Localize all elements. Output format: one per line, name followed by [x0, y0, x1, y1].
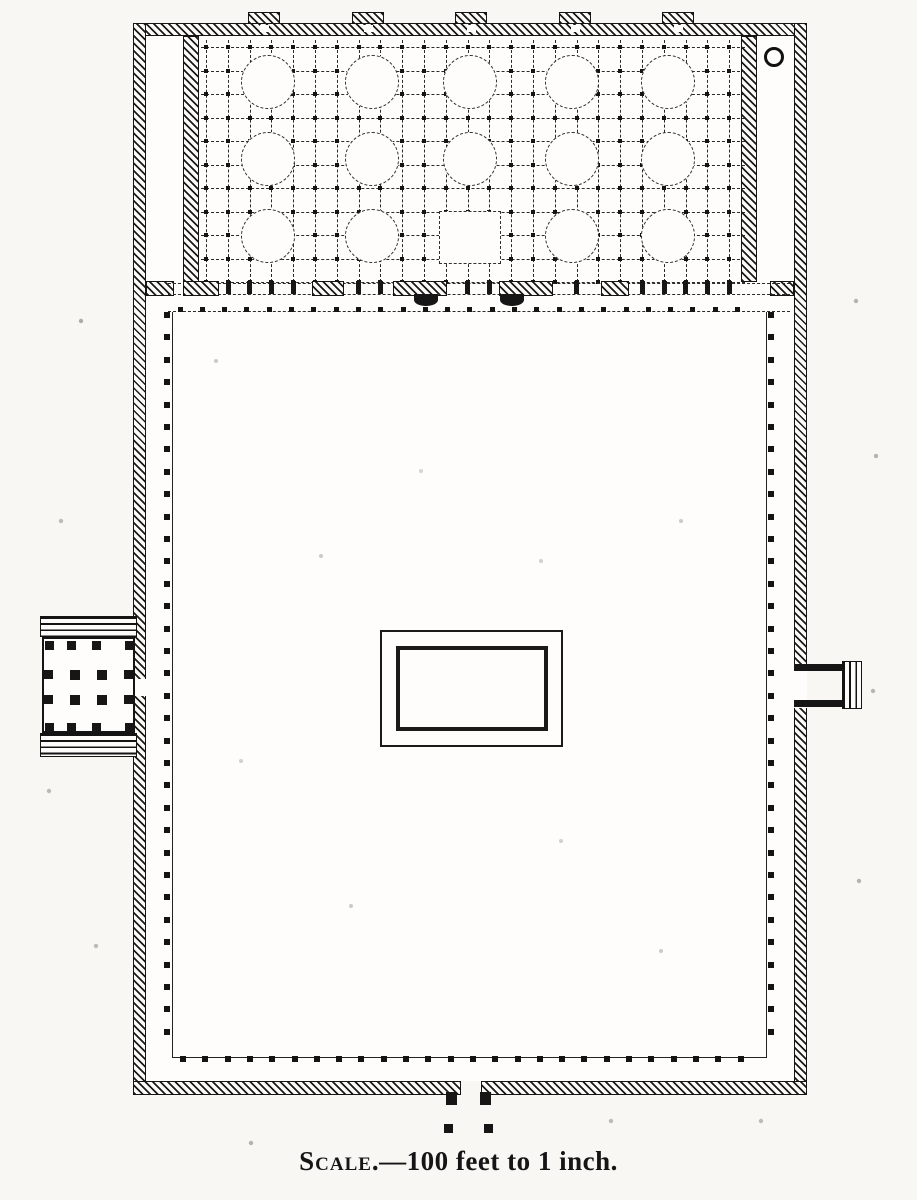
arcade-column-dot-west [164, 827, 170, 833]
arcade-column-dot-west [164, 917, 170, 923]
east-wall [794, 23, 807, 1095]
hall-column-dot [226, 139, 230, 143]
dome-circle [641, 55, 695, 109]
north-wall-buttress [559, 12, 591, 24]
buttress-niche [364, 25, 373, 32]
hall-column-dot [204, 69, 208, 73]
boundary-dash-line [168, 283, 790, 284]
paper-speckles [0, 0, 2, 2]
arcade-column-dot-east [768, 715, 774, 721]
arcade-column-dot-south [247, 1056, 253, 1062]
west-gate-pier [70, 670, 80, 680]
hall-column-dot [335, 116, 339, 120]
boundary-column-tick [705, 281, 710, 294]
hall-column-dot [487, 116, 491, 120]
hall-column-dot [378, 186, 382, 190]
boundary-column-tick [683, 281, 688, 294]
hall-column-dot [596, 139, 600, 143]
arcade-column-dot-west [164, 536, 170, 542]
hall-column-dot [335, 92, 339, 96]
hall-column-dot [553, 186, 557, 190]
arcade-column-dot-east [768, 670, 774, 676]
hall-east-partition [741, 36, 757, 282]
scale-caption-value: .—100 feet to 1 inch. [372, 1146, 618, 1176]
arcade-column-dot-south [336, 1056, 342, 1062]
arcade-column-dot-south [202, 1056, 208, 1062]
south-entrance-wall-cap [446, 1092, 457, 1105]
arcade-column-dot-south [358, 1056, 364, 1062]
west-gate-pier [97, 670, 107, 680]
hall-column-dot [400, 257, 404, 261]
hall-column-dot [313, 186, 317, 190]
arcade-column-dot-south [693, 1056, 699, 1062]
hall-column-dot [204, 186, 208, 190]
arcade-column-dot-east [768, 469, 774, 475]
boundary-column-tick [727, 281, 732, 294]
hall-column-dot [313, 69, 317, 73]
hall-column-dot [662, 186, 666, 190]
west-gate-pilaster [45, 641, 54, 650]
hall-column-dot [509, 233, 513, 237]
hall-column-dot [400, 163, 404, 167]
boundary-dash-line [168, 294, 790, 295]
arcade-column-dot-east [768, 334, 774, 340]
boundary-column-tick [356, 281, 361, 294]
west-gate-pilaster [44, 695, 53, 704]
hall-column-dot [357, 186, 361, 190]
hall-column-dot [248, 116, 252, 120]
dome-circle [241, 132, 295, 186]
hall-column-dot [422, 210, 426, 214]
arcade-column-dot-south [738, 1056, 744, 1062]
hall-column-dot [684, 45, 688, 49]
hall-column-dot [618, 45, 622, 49]
south-entrance-post [484, 1124, 493, 1133]
arcade-column-dot-west [164, 738, 170, 744]
hall-grid-vline [424, 40, 425, 282]
hall-column-dot [291, 210, 295, 214]
hall-column-dot [226, 210, 230, 214]
hall-column-dot [596, 116, 600, 120]
hall-grid-vline [315, 40, 316, 282]
hall-column-dot [684, 210, 688, 214]
hall-column-dot [400, 116, 404, 120]
hall-column-dot [400, 233, 404, 237]
hall-column-dot [727, 257, 731, 261]
arcade-column-dot-east [768, 581, 774, 587]
boundary-column-tick [378, 281, 383, 294]
hall-column-dot [400, 139, 404, 143]
hall-column-dot [226, 92, 230, 96]
hall-column-dot [618, 233, 622, 237]
hall-column-dot [531, 116, 535, 120]
arcade-column-dot-east [768, 1029, 774, 1035]
boundary-column-tick [269, 281, 274, 294]
hall-column-dot [640, 210, 644, 214]
hall-column-dot [509, 92, 513, 96]
hall-column-dot [727, 210, 731, 214]
hall-column-dot [444, 45, 448, 49]
boundary-column-tick [247, 281, 252, 294]
arcade-column-dot-west [164, 334, 170, 340]
hall-column-dot [226, 116, 230, 120]
hall-column-dot [509, 186, 513, 190]
south-wall-left [133, 1081, 461, 1095]
hall-grid-vline [729, 40, 730, 282]
boundary-column-tick [574, 281, 579, 294]
hall-column-dot [422, 257, 426, 261]
hall-column-dot [553, 116, 557, 120]
hall-column-dot [553, 45, 557, 49]
dome-circle [345, 55, 399, 109]
arcade-column-dot-west [164, 693, 170, 699]
hall-column-dot [705, 233, 709, 237]
hall-column-dot [204, 45, 208, 49]
west-gate-pilaster [45, 723, 54, 732]
hall-column-dot [705, 186, 709, 190]
west-gate-pilaster [67, 641, 76, 650]
hall-column-dot [444, 186, 448, 190]
hall-grid-vline [206, 40, 207, 282]
west-gate-pilaster [125, 723, 134, 732]
hall-column-dot [226, 233, 230, 237]
hall-column-dot [357, 116, 361, 120]
boundary-pier [183, 281, 219, 296]
hall-column-dot [531, 45, 535, 49]
hall-column-dot [269, 116, 273, 120]
hall-column-dot [618, 92, 622, 96]
hall-column-dot [640, 139, 644, 143]
hall-column-dot [357, 45, 361, 49]
hall-column-dot [705, 45, 709, 49]
arcade-column-dot-west [164, 1006, 170, 1012]
hall-column-dot [727, 233, 731, 237]
boundary-column-tick [291, 281, 296, 294]
hall-column-dot [618, 163, 622, 167]
arcade-column-dot-south [425, 1056, 431, 1062]
east-gate-stairs [842, 661, 862, 709]
hall-column-dot [204, 233, 208, 237]
hall-column-dot [684, 186, 688, 190]
hall-column-dot [531, 257, 535, 261]
hall-column-dot [466, 186, 470, 190]
arcade-column-dot-south [626, 1056, 632, 1062]
boundary-pier [601, 281, 629, 296]
hall-column-dot [618, 210, 622, 214]
west-gate-pilaster [92, 723, 101, 732]
south-wall-right [481, 1081, 807, 1095]
hall-column-dot [204, 139, 208, 143]
arcade-column-dot-west [164, 514, 170, 520]
hall-column-dot [705, 257, 709, 261]
west-gate-pilaster [124, 695, 133, 704]
fountain-basin [396, 646, 548, 731]
hall-column-dot [335, 210, 339, 214]
hall-column-dot [226, 257, 230, 261]
hall-column-dot [400, 69, 404, 73]
arcade-column-dot-west [164, 581, 170, 587]
minaret-circle [764, 47, 784, 67]
west-gate-pilaster [44, 670, 53, 679]
buttress-niche [467, 25, 476, 32]
arcade-column-dot-east [768, 850, 774, 856]
hall-column-dot [313, 163, 317, 167]
dome-circle [443, 55, 497, 109]
arcade-column-dot-south [715, 1056, 721, 1062]
arcade-column-dot-west [164, 379, 170, 385]
hall-column-dot [705, 139, 709, 143]
hall-column-dot [575, 45, 579, 49]
hall-column-dot [313, 116, 317, 120]
arcade-column-dot-east [768, 962, 774, 968]
hall-column-dot [487, 186, 491, 190]
hall-west-partition [183, 36, 199, 282]
buttress-niche [260, 25, 269, 32]
arcade-column-dot-south [448, 1056, 454, 1062]
arcade-column-dot-west [164, 558, 170, 564]
dome-circle [641, 132, 695, 186]
hall-column-dot [313, 92, 317, 96]
arcade-column-dot-west [164, 469, 170, 475]
arcade-column-dot-west [164, 424, 170, 430]
dome-circle [345, 132, 399, 186]
arcade-column-dot-east [768, 536, 774, 542]
arcade-column-dot-south [492, 1056, 498, 1062]
dome-circle [241, 209, 295, 263]
hall-column-dot [531, 233, 535, 237]
arcade-column-dot-east [768, 558, 774, 564]
hall-column-dot [727, 45, 731, 49]
arcade-column-dot-east [768, 917, 774, 923]
hall-column-dot [291, 45, 295, 49]
hall-column-dot [335, 186, 339, 190]
arcade-column-dot-south [515, 1056, 521, 1062]
hall-column-dot [422, 186, 426, 190]
hall-column-dot [378, 45, 382, 49]
west-gate-north-stairs [40, 616, 137, 637]
hall-column-dot [640, 45, 644, 49]
hall-column-dot [618, 186, 622, 190]
arcade-column-dot-west [164, 760, 170, 766]
arcade-column-dot-south [269, 1056, 275, 1062]
arcade-column-dot-west [164, 402, 170, 408]
hall-column-dot [335, 163, 339, 167]
dome-circle [545, 55, 599, 109]
hall-column-dot [466, 116, 470, 120]
arcade-column-dot-east [768, 939, 774, 945]
dome-circle [641, 209, 695, 263]
hall-column-dot [291, 257, 295, 261]
hall-column-dot [596, 257, 600, 261]
hall-grid-vline [511, 40, 512, 282]
hall-column-dot [291, 139, 295, 143]
hall-column-dot [509, 45, 513, 49]
hall-grid-vline [533, 40, 534, 282]
hall-column-dot [269, 45, 273, 49]
scale-caption-label: Scale [299, 1146, 372, 1176]
arcade-column-dot-east [768, 894, 774, 900]
hall-column-dot [291, 116, 295, 120]
arcade-column-dot-west [164, 491, 170, 497]
hall-column-dot [444, 116, 448, 120]
arcade-column-dot-south [604, 1056, 610, 1062]
hall-column-dot [509, 139, 513, 143]
hall-column-dot [204, 92, 208, 96]
hall-column-dot [226, 186, 230, 190]
dome-circle [241, 55, 295, 109]
arcade-column-dot-west [164, 805, 170, 811]
hall-column-dot [575, 116, 579, 120]
west-gate-pilaster [125, 641, 134, 650]
west-wall [133, 23, 146, 1095]
arcade-column-dot-south [537, 1056, 543, 1062]
hall-column-dot [313, 210, 317, 214]
mosque-floor-plan [0, 0, 917, 1200]
north-wall-buttress [248, 12, 280, 24]
hall-column-dot [618, 257, 622, 261]
hall-column-dot [204, 116, 208, 120]
hall-column-dot [487, 45, 491, 49]
hall-column-dot [248, 186, 252, 190]
hall-column-dot [705, 69, 709, 73]
hall-column-dot [226, 45, 230, 49]
arcade-column-dot-west [164, 603, 170, 609]
arcade-column-dot-east [768, 446, 774, 452]
arcade-column-dot-south [581, 1056, 587, 1062]
arcade-column-dot-east [768, 648, 774, 654]
west-gate-pilaster [124, 670, 133, 679]
arcade-column-dot-east [768, 872, 774, 878]
arcade-column-dot-south [381, 1056, 387, 1062]
hall-column-dot [313, 139, 317, 143]
hall-column-dot [466, 45, 470, 49]
hall-column-dot [400, 45, 404, 49]
boundary-column-tick [226, 281, 231, 294]
hall-column-dot [640, 186, 644, 190]
arcade-column-dot-east [768, 379, 774, 385]
arcade-column-dot-west [164, 984, 170, 990]
hall-column-dot [618, 116, 622, 120]
hall-column-dot [531, 163, 535, 167]
hall-grid-vline [707, 40, 708, 282]
arcade-column-dot-west [164, 357, 170, 363]
arcade-column-dot-west [164, 939, 170, 945]
arcade-column-dot-east [768, 402, 774, 408]
arcade-column-dot-south [314, 1056, 320, 1062]
engraving-page: Scale.—100 feet to 1 inch. [0, 0, 917, 1200]
dome-circle [545, 209, 599, 263]
hall-column-dot [575, 186, 579, 190]
boundary-column-tick [465, 281, 470, 294]
boundary-column-tick [487, 281, 492, 294]
west-gate-south-stairs [40, 733, 137, 757]
hall-column-dot [226, 163, 230, 167]
hall-column-dot [335, 139, 339, 143]
hall-column-dot [313, 233, 317, 237]
west-gate-pier [97, 695, 107, 705]
hall-column-dot [596, 210, 600, 214]
north-wall-buttress [662, 12, 694, 24]
dome-circle [545, 132, 599, 186]
arcade-column-dot-east [768, 827, 774, 833]
west-gate-pier [70, 695, 80, 705]
dome-circle [345, 209, 399, 263]
hall-column-dot [400, 92, 404, 96]
arcade-column-dot-west [164, 626, 170, 632]
hall-column-dot [400, 186, 404, 190]
hall-column-dot [531, 139, 535, 143]
boundary-pier [312, 281, 344, 296]
scale-caption: Scale.—100 feet to 1 inch. [0, 1146, 917, 1177]
dome-circle [443, 132, 497, 186]
hall-column-dot [226, 69, 230, 73]
east-gate-south-wall [794, 700, 844, 707]
hall-column-dot [727, 163, 731, 167]
hall-column-dot [705, 92, 709, 96]
hall-column-dot [727, 92, 731, 96]
hall-column-dot [335, 257, 339, 261]
hall-column-dot [531, 92, 535, 96]
arcade-column-dot-west [164, 894, 170, 900]
hall-column-dot [422, 45, 426, 49]
hall-column-dot [705, 116, 709, 120]
hall-column-dot [509, 69, 513, 73]
north-wall-buttress [352, 12, 384, 24]
hall-column-dot [531, 186, 535, 190]
arcade-column-dot-east [768, 626, 774, 632]
hall-column-dot [640, 257, 644, 261]
hall-column-dot [422, 233, 426, 237]
door-pivot-mark [414, 294, 438, 306]
arcade-column-dot-east [768, 1006, 774, 1012]
arcade-column-dot-east [768, 984, 774, 990]
hall-column-dot [378, 116, 382, 120]
empty-central-bay [439, 211, 501, 264]
hall-column-dot [596, 92, 600, 96]
arcade-column-dot-south [470, 1056, 476, 1062]
arcade-column-dot-south [648, 1056, 654, 1062]
arcade-column-dot-west [164, 648, 170, 654]
hall-column-dot [640, 116, 644, 120]
arcade-column-dot-west [164, 446, 170, 452]
hall-column-dot [509, 116, 513, 120]
arcade-column-dot-east [768, 491, 774, 497]
hall-column-dot [204, 210, 208, 214]
hall-column-dot [509, 257, 513, 261]
hall-column-dot [596, 186, 600, 190]
hall-column-dot [269, 186, 273, 190]
hall-column-dot [662, 116, 666, 120]
hall-column-dot [705, 210, 709, 214]
hall-grid-vline [337, 40, 338, 282]
south-entrance-post [444, 1124, 453, 1133]
west-gate-pilaster [92, 641, 101, 650]
arcade-column-dot-east [768, 805, 774, 811]
hall-column-dot [509, 210, 513, 214]
hall-column-dot [727, 186, 731, 190]
hall-column-dot [684, 116, 688, 120]
hall-column-dot [422, 92, 426, 96]
arcade-column-dot-west [164, 312, 170, 318]
hall-column-dot [705, 163, 709, 167]
hall-grid-vline [402, 40, 403, 282]
hall-column-dot [313, 45, 317, 49]
arcade-column-dot-south [180, 1056, 186, 1062]
arcade-column-dot-west [164, 1029, 170, 1035]
buttress-niche [674, 25, 683, 32]
arcade-column-dot-south [225, 1056, 231, 1062]
hall-grid-vline [228, 40, 229, 282]
